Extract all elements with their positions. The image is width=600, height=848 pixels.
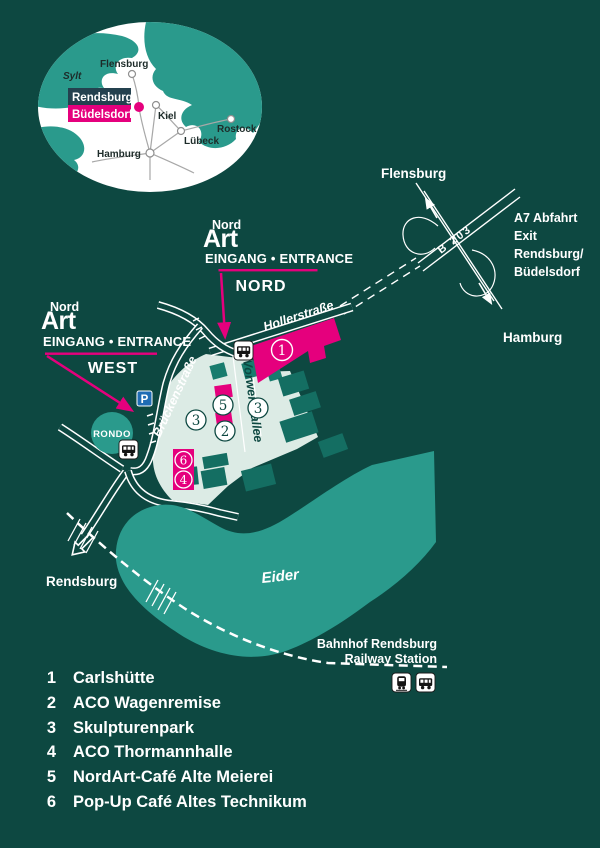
bus-icon	[119, 440, 138, 459]
entrance-nord-title: EINGANG • ENTRANCE	[205, 251, 353, 266]
a7-exit-line1: A7 Abfahrt	[514, 211, 578, 225]
legend-item: 2 ACO Wagenremise	[47, 694, 221, 712]
entrance-west-subtitle: WEST	[88, 360, 138, 377]
direction-hamburg: Hamburg	[503, 330, 562, 345]
marker-2: 2	[215, 421, 235, 441]
legend-label: Skulpturenpark	[73, 719, 195, 737]
station-label-line1: Bahnhof Rendsburg	[317, 637, 437, 651]
buedelsdorf-badge-label: Büdelsdorf	[72, 109, 133, 121]
city-label-sylt: Sylt	[63, 71, 82, 82]
direction-rendsburg: Rendsburg	[46, 574, 117, 589]
legend-number: 1	[47, 669, 56, 687]
logo-art-word: Art	[203, 225, 239, 253]
city-marker-hamburg	[146, 149, 154, 157]
city-marker-kiel	[153, 102, 160, 109]
logo-art-word: Art	[41, 307, 77, 335]
entrance-nord-underline	[219, 269, 318, 271]
nordart-directions-map: Sylt Flensburg Kiel Lübeck Rostock Hambu…	[0, 0, 600, 848]
legend-label: Pop-Up Café Altes Technikum	[73, 793, 307, 811]
a7-exit-line4: Büdelsdorf	[514, 265, 581, 279]
a7-exit-line2: Exit	[514, 229, 538, 243]
city-marker-flensburg	[129, 71, 136, 78]
legend-item: 5 NordArt-Café Alte Meierei	[47, 768, 273, 786]
rendsburg-badge-label: Rendsburg	[72, 92, 133, 104]
legend-number: 3	[47, 719, 56, 737]
marker-5-number: 5	[219, 398, 228, 414]
legend-number: 4	[47, 743, 57, 761]
city-label-hamburg: Hamburg	[97, 149, 141, 160]
parking-icon: P	[137, 391, 152, 406]
marker-3-west: 3	[186, 410, 206, 430]
legend-label: ACO Wagenremise	[73, 694, 221, 712]
rondo-label: RONDO	[93, 429, 131, 440]
marker-1-number: 1	[278, 343, 287, 359]
marker-6-number: 6	[180, 454, 188, 468]
marker-4-number: 4	[180, 473, 188, 487]
entrance-west-underline	[45, 353, 157, 355]
entrance-nord-subtitle: NORD	[235, 278, 286, 295]
direction-flensburg: Flensburg	[381, 166, 446, 181]
parking-icon-letter: P	[141, 394, 149, 406]
marker-2-number: 2	[221, 424, 230, 440]
city-label-luebeck: Lübeck	[184, 136, 219, 147]
city-label-flensburg: Flensburg	[100, 59, 148, 70]
city-label-kiel: Kiel	[158, 111, 177, 122]
location-dot	[134, 102, 144, 112]
train-icon	[392, 673, 411, 692]
legend-number: 5	[47, 768, 56, 786]
station-label-line2: Railway Station	[345, 652, 437, 666]
marker-3-number: 3	[192, 413, 201, 429]
city-marker-rostock	[228, 116, 235, 123]
legend-label: NordArt-Café Alte Meierei	[73, 768, 273, 786]
marker-3-east: 3	[248, 398, 268, 418]
legend-label: Carlshütte	[73, 669, 155, 687]
legend-item: 4 ACO Thormannhalle	[47, 743, 233, 761]
legend-item: 6 Pop-Up Café Altes Technikum	[47, 793, 307, 811]
marker-5: 5	[213, 395, 233, 415]
marker-3-number: 3	[254, 401, 263, 417]
a7-exit-line3: Rendsburg/	[514, 247, 584, 261]
bus-icon	[416, 673, 435, 692]
legend-number: 6	[47, 793, 56, 811]
legend-number: 2	[47, 694, 56, 712]
city-marker-luebeck	[178, 128, 185, 135]
bus-icon	[234, 341, 253, 360]
entrance-west-title: EINGANG • ENTRANCE	[43, 334, 191, 349]
city-label-rostock: Rostock	[217, 124, 257, 135]
legend-label: ACO Thormannhalle	[73, 743, 233, 761]
